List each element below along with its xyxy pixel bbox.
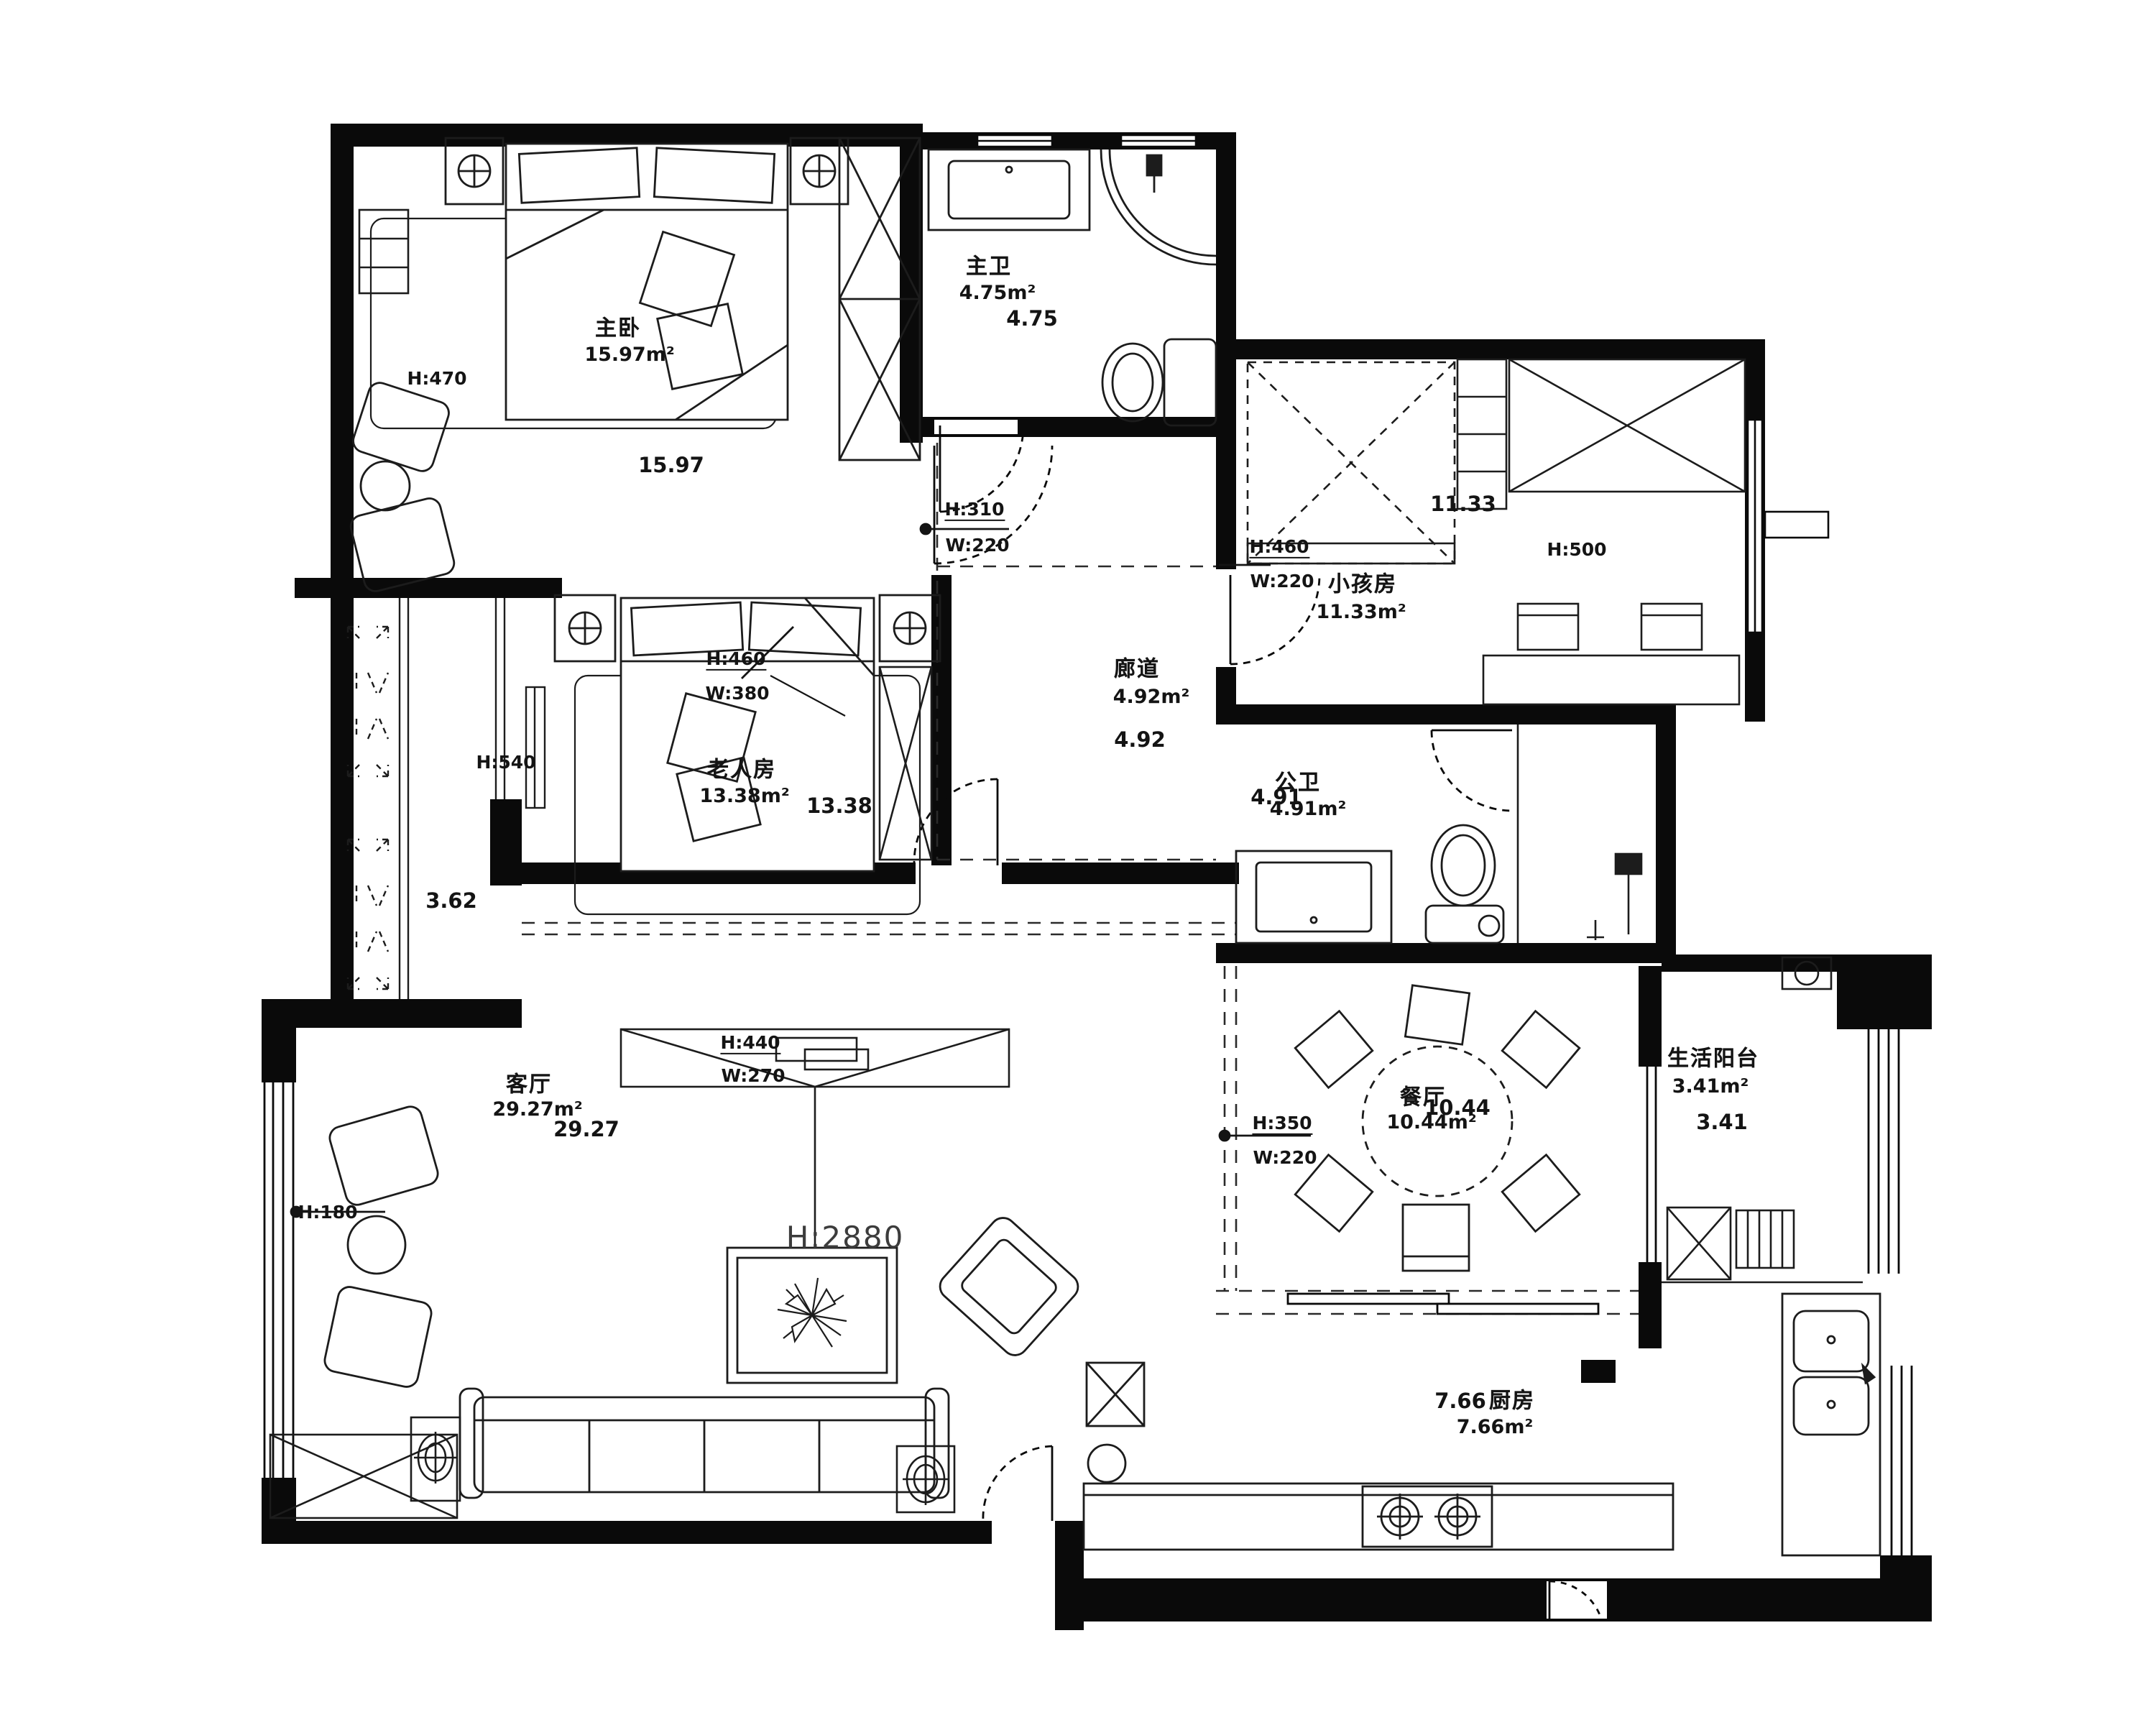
door-w-label-kids: W:220: [1250, 571, 1314, 590]
plant-icon: [778, 1278, 847, 1347]
room-area-master-bedroom: 15.97m²: [584, 345, 674, 365]
room-dim-living: 29.27: [553, 1121, 619, 1142]
room-dim-kitchen: 7.66: [1434, 1392, 1486, 1414]
tv-w-label: W:270: [722, 1066, 786, 1085]
elder-dresser: [526, 687, 545, 808]
room-area-elder: 13.38m²: [699, 786, 789, 806]
public-bath-toilet: [1426, 825, 1503, 943]
room-dim-master-bath: 4.75: [1006, 310, 1058, 331]
living-armchairs: [323, 1104, 1083, 1389]
shaft-louvers: [348, 598, 505, 999]
ceiling-height-label: H:2880: [786, 1222, 905, 1253]
door-h-label-dining: H:350: [1252, 1113, 1312, 1135]
room-label-elder: 老人房: [707, 759, 776, 782]
kitchen-sink-counter: [1782, 1294, 1880, 1555]
room-label-kids: 小孩房: [1328, 574, 1397, 597]
coffee-table-plant: [727, 1248, 897, 1383]
window-w-label-elder: W:380: [706, 684, 770, 702]
door-h-label-corridor: H:310: [944, 500, 1004, 521]
master-bath-shower: [1101, 149, 1216, 264]
room-area-kids: 11.33m²: [1316, 602, 1406, 622]
window-flag-icon: [1765, 512, 1828, 538]
living-cabinet: [270, 1435, 457, 1518]
window-h-label-elder: H:460: [706, 649, 765, 671]
floor-plan: 主卧 15.97m² 15.97 H:470 主卫 4.75m² 4.75 小孩…: [0, 0, 2156, 1725]
elder-wardrobe: [880, 667, 931, 860]
door-h-label-kids: H:460: [1249, 537, 1309, 558]
kids-shelf: [1457, 359, 1506, 509]
height-label-kids: H:500: [1547, 540, 1606, 558]
room-area-corridor: 4.92m²: [1113, 687, 1190, 707]
door-w-label-dining: W:220: [1253, 1148, 1317, 1167]
room-dim-balcony: 3.41: [1696, 1113, 1748, 1135]
room-area-balcony: 3.41m²: [1672, 1077, 1749, 1097]
room-label-balcony: 生活阳台: [1667, 1048, 1759, 1071]
room-dim-elder: 13.38: [806, 797, 872, 819]
height-label-elder: H:540: [476, 753, 535, 771]
kids-bed: [1248, 362, 1455, 563]
room-dim-kids: 11.33: [1430, 495, 1496, 517]
master-armchairs: [349, 380, 456, 594]
master-dresser: [359, 210, 408, 293]
public-bath-sink: [1236, 851, 1391, 943]
room-label-living: 客厅: [506, 1074, 552, 1097]
height-label-master: H:470: [407, 369, 466, 387]
floor-plan-drawing: [0, 0, 2156, 1725]
tv-h-label: H:440: [720, 1033, 780, 1054]
room-dim-master-bedroom: 15.97: [638, 456, 704, 478]
height-label-living: H:180: [298, 1202, 357, 1221]
airflow-arrows-icon: [348, 627, 388, 989]
room-area-dining: 10.44m²: [1386, 1113, 1476, 1133]
kids-desk: [1483, 604, 1739, 704]
door-w-label-corridor: W:220: [946, 535, 1010, 554]
room-area-kitchen: 7.66m²: [1457, 1417, 1534, 1437]
master-bath-toilet: [1102, 339, 1216, 425]
room-dim-corridor: 4.92: [1114, 731, 1166, 753]
shaft-dim: 3.62: [425, 892, 477, 914]
tv-console: [621, 1029, 1009, 1245]
sofa: [460, 1389, 949, 1498]
room-label-corridor: 廊道: [1114, 658, 1160, 681]
public-bath-shower: [1518, 724, 1641, 943]
room-area-master-bath: 4.75m²: [959, 283, 1036, 303]
room-area-living: 29.27m²: [492, 1100, 582, 1120]
room-area-public-bath: 4.91m²: [1270, 799, 1347, 819]
master-bath-sink: [929, 149, 1089, 230]
room-label-kitchen: 厨房: [1489, 1390, 1535, 1413]
room-label-master-bath: 主卫: [966, 256, 1012, 279]
room-label-master-bedroom: 主卧: [595, 318, 641, 341]
side-table-lamps: [411, 1417, 954, 1512]
balcony-washer: [1662, 957, 1863, 1282]
kids-wardrobe: [1509, 359, 1745, 492]
sink-icon: [1794, 1311, 1869, 1371]
